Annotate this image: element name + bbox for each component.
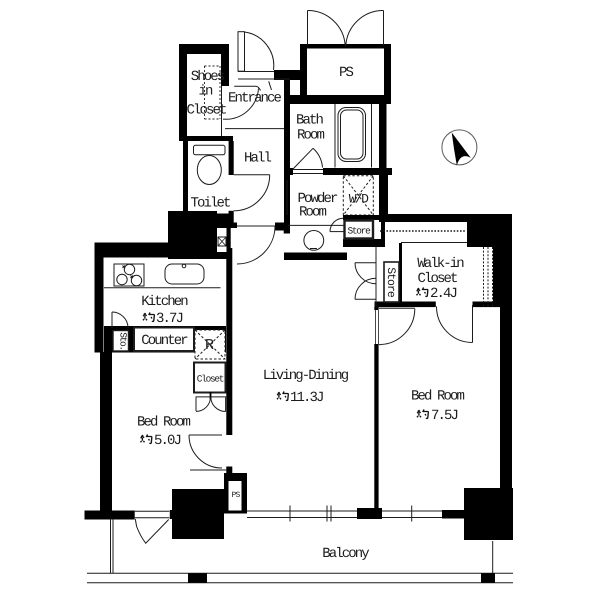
svg-text:Hall: Hall <box>244 151 272 167</box>
svg-text:R: R <box>205 337 214 354</box>
svg-text:PS: PS <box>231 491 240 500</box>
svg-text:in: in <box>198 84 213 100</box>
svg-text:Toilet: Toilet <box>190 196 230 212</box>
svg-text:Store: Store <box>347 226 371 237</box>
svg-text:W/D: W/D <box>349 192 369 207</box>
svg-text:Balcony: Balcony <box>322 546 369 562</box>
svg-text:PS: PS <box>339 65 354 81</box>
svg-text:Closet: Closet <box>186 103 226 119</box>
svg-text:3.7J: 3.7J <box>156 311 183 327</box>
svg-text:Closet: Closet <box>197 374 224 385</box>
svg-text:7.5J: 7.5J <box>431 408 458 424</box>
svg-text:Bath: Bath <box>296 113 324 129</box>
svg-text:Walk-in: Walk-in <box>417 256 464 272</box>
svg-text:Store: Store <box>384 267 397 298</box>
svg-text:Closet: Closet <box>417 271 457 287</box>
svg-text:Entrance: Entrance <box>228 91 282 107</box>
svg-text:Counter: Counter <box>141 333 188 349</box>
svg-text:11.3J: 11.3J <box>290 390 323 406</box>
svg-text:Bed Room: Bed Room <box>137 415 191 431</box>
svg-text:Room: Room <box>299 205 327 221</box>
svg-text:Sto.: Sto. <box>118 332 129 350</box>
svg-text:Kitchen: Kitchen <box>141 294 188 310</box>
svg-text:Room: Room <box>297 128 325 144</box>
svg-text:2.4J: 2.4J <box>430 286 457 302</box>
svg-text:Living-Dining: Living-Dining <box>263 368 349 384</box>
svg-text:Bed Room: Bed Room <box>411 389 465 405</box>
svg-text:5.0J: 5.0J <box>154 433 181 449</box>
